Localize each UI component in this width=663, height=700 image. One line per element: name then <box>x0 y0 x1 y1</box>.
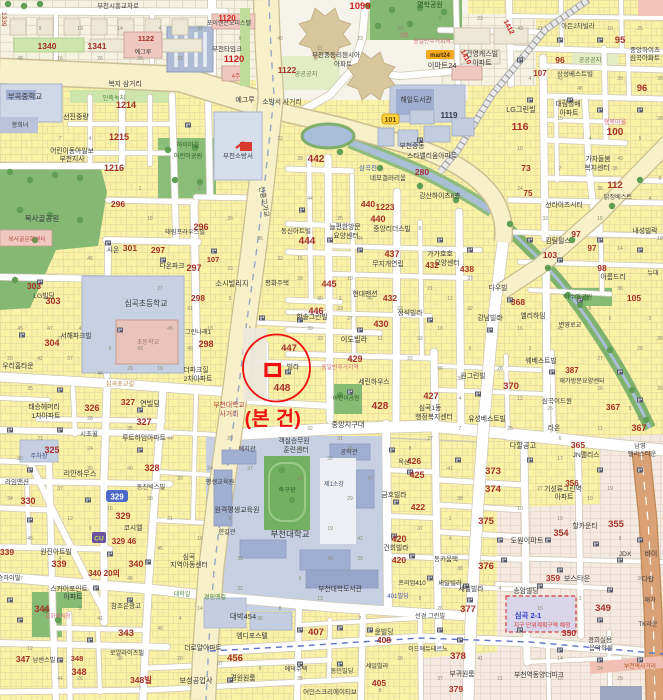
svg-text:루트하임아파트: 루트하임아파트 <box>122 433 166 442</box>
svg-text:1215: 1215 <box>109 132 129 142</box>
svg-text:44: 44 <box>167 436 173 442</box>
svg-text:아름드리: 아름드리 <box>600 272 625 281</box>
svg-text:29: 29 <box>637 416 643 422</box>
svg-text:329: 329 <box>110 493 124 502</box>
svg-text:32: 32 <box>277 256 283 262</box>
svg-text:73: 73 <box>521 163 531 173</box>
svg-text:8: 8 <box>409 446 412 452</box>
svg-text:봉희녀: 봉희녀 <box>12 121 29 129</box>
svg-text:훈련센터: 훈련센터 <box>283 445 308 454</box>
svg-text:27: 27 <box>347 316 353 322</box>
svg-text:1119: 1119 <box>441 111 458 120</box>
svg-text:세린하우스: 세린하우스 <box>358 377 389 386</box>
svg-text:437: 437 <box>384 249 399 259</box>
svg-text:라임맨션: 라임맨션 <box>5 477 29 486</box>
svg-text:445: 445 <box>321 279 336 289</box>
svg-text:349: 349 <box>595 603 611 614</box>
svg-text:301: 301 <box>123 243 137 253</box>
svg-text:43: 43 <box>137 346 143 352</box>
svg-text:112: 112 <box>607 180 622 191</box>
svg-text:39: 39 <box>297 156 303 162</box>
svg-text:37: 37 <box>17 576 23 582</box>
svg-text:4: 4 <box>179 616 182 622</box>
svg-text:복지센터: 복지센터 <box>584 163 609 172</box>
svg-text:24: 24 <box>207 466 213 472</box>
svg-text:초등학교: 초등학교 <box>137 338 160 346</box>
svg-text:1340: 1340 <box>38 41 57 51</box>
svg-text:객실승무원: 객실승무원 <box>278 436 309 445</box>
svg-text:33: 33 <box>317 336 323 342</box>
svg-text:298: 298 <box>191 293 205 303</box>
svg-text:35: 35 <box>612 166 618 172</box>
svg-text:10: 10 <box>587 496 593 502</box>
svg-text:더로얄아파트: 더로얄아파트 <box>184 643 222 652</box>
svg-text:15: 15 <box>557 116 563 122</box>
svg-text:킴팀필스: 킴팀필스 <box>545 237 570 245</box>
svg-text:내성빌락: 내성빌락 <box>632 226 658 235</box>
svg-text:4: 4 <box>79 326 82 332</box>
svg-text:14: 14 <box>117 26 123 32</box>
svg-text:3: 3 <box>649 316 652 322</box>
svg-text:6: 6 <box>609 316 612 322</box>
svg-text:15: 15 <box>537 606 543 612</box>
svg-text:스카이포인트: 스카이포인트 <box>50 584 88 593</box>
svg-text:동민빌딩: 동민빌딩 <box>331 667 354 675</box>
svg-text:명학공원: 명학공원 <box>417 0 443 9</box>
svg-text:예지관: 예지관 <box>238 445 255 453</box>
svg-text:100: 100 <box>607 127 624 138</box>
svg-text:37: 37 <box>197 186 203 192</box>
svg-text:부천지사: 부천지사 <box>59 154 85 163</box>
svg-text:37: 37 <box>467 276 473 282</box>
svg-text:라온: 라온 <box>548 423 561 432</box>
svg-text:코시엘: 코시엘 <box>124 524 143 532</box>
svg-text:동신아트빌: 동신아트빌 <box>281 226 311 235</box>
svg-text:남영: 남영 <box>634 442 645 450</box>
svg-text:엠디포스텔: 엠디포스텔 <box>236 631 267 640</box>
svg-text:28: 28 <box>637 346 643 352</box>
svg-text:12: 12 <box>517 396 523 402</box>
svg-text:297: 297 <box>186 263 201 273</box>
svg-text:10: 10 <box>607 26 613 32</box>
svg-text:32: 32 <box>307 426 313 432</box>
svg-text:44: 44 <box>57 676 63 682</box>
svg-text:39: 39 <box>307 326 313 332</box>
svg-text:LG그린빌: LG그린빌 <box>506 105 535 114</box>
svg-text:6: 6 <box>419 226 422 232</box>
svg-text:하이마을: 하이마을 <box>177 141 200 149</box>
svg-text:어린이공원: 어린이공원 <box>174 152 203 160</box>
svg-text:36: 36 <box>257 236 263 242</box>
svg-text:348: 348 <box>71 654 84 663</box>
svg-text:다온파크: 다온파크 <box>159 261 184 270</box>
svg-text:심곡이드원: 심곡이드원 <box>542 396 572 405</box>
svg-text:14: 14 <box>197 606 203 612</box>
svg-text:30: 30 <box>617 76 623 82</box>
svg-text:아파트: 아파트 <box>64 592 83 601</box>
svg-text:서해파크빌: 서해파크빌 <box>60 331 91 340</box>
svg-text:325: 325 <box>44 445 59 455</box>
svg-text:1120: 1120 <box>218 14 236 23</box>
svg-text:35: 35 <box>127 426 133 432</box>
svg-text:1214: 1214 <box>116 100 136 110</box>
svg-text:21: 21 <box>37 436 43 442</box>
svg-text:14: 14 <box>557 656 563 662</box>
svg-text:음악학원: 음악학원 <box>589 643 613 652</box>
svg-text:40: 40 <box>127 466 133 472</box>
svg-text:33: 33 <box>237 556 243 562</box>
svg-text:에덕주택: 에덕주택 <box>285 665 308 673</box>
svg-text:75: 75 <box>524 189 533 198</box>
svg-text:아파트: 아파트 <box>555 492 574 501</box>
svg-text:15: 15 <box>597 216 603 222</box>
svg-text:송암빌딩: 송암빌딩 <box>513 586 538 595</box>
svg-text:43: 43 <box>617 156 623 162</box>
svg-text:16: 16 <box>107 506 113 512</box>
svg-text:25: 25 <box>637 26 643 32</box>
svg-text:432: 432 <box>383 293 397 303</box>
svg-text:344: 344 <box>34 604 49 614</box>
svg-text:20: 20 <box>227 436 233 442</box>
svg-text:26: 26 <box>97 56 103 62</box>
svg-text:45: 45 <box>167 326 173 332</box>
svg-text:대박454: 대박454 <box>230 611 256 621</box>
svg-text:365: 365 <box>571 440 585 450</box>
svg-text:사거리: 사거리 <box>220 409 239 418</box>
svg-text:참조은광고: 참조은광고 <box>111 602 141 610</box>
svg-text:41: 41 <box>477 656 483 662</box>
svg-text:1차아파트: 1차아파트 <box>32 411 61 420</box>
svg-text:가자들봄: 가자들봄 <box>585 154 610 163</box>
svg-text:아든2차빌라: 아든2차빌라 <box>561 21 595 30</box>
svg-text:부천대학교: 부천대학교 <box>270 529 309 539</box>
svg-text:43: 43 <box>517 26 523 32</box>
svg-text:21: 21 <box>537 26 543 32</box>
svg-text:107: 107 <box>533 69 547 78</box>
svg-text:444: 444 <box>299 236 316 247</box>
svg-text:16: 16 <box>57 56 63 62</box>
svg-text:웨베스트빌: 웨베스트빌 <box>525 356 556 365</box>
svg-text:6: 6 <box>559 436 562 442</box>
svg-text:JDX: JDX <box>619 551 632 558</box>
svg-text:태승헤머리: 태승헤머리 <box>28 402 59 411</box>
svg-text:27: 27 <box>157 286 163 292</box>
svg-text:36: 36 <box>657 336 663 342</box>
svg-text:30: 30 <box>177 476 183 482</box>
svg-text:103: 103 <box>543 250 557 260</box>
svg-text:이마트24: 이마트24 <box>427 60 456 70</box>
svg-text:408: 408 <box>377 635 391 645</box>
svg-text:26: 26 <box>437 606 443 612</box>
svg-text:늘편한방문: 늘편한방문 <box>329 222 360 231</box>
svg-text:42: 42 <box>357 536 363 542</box>
svg-text:27: 27 <box>597 356 603 362</box>
svg-text:101: 101 <box>385 117 397 124</box>
svg-text:5: 5 <box>589 306 592 312</box>
svg-text:아파트: 아파트 <box>334 59 352 68</box>
svg-text:375: 375 <box>478 516 495 527</box>
svg-text:할카운티: 할카운티 <box>572 521 597 530</box>
svg-text:유성베스트빌: 유성베스트빌 <box>468 414 506 423</box>
svg-text:경원원룸: 경원원룸 <box>230 673 255 682</box>
svg-text:25: 25 <box>337 216 343 222</box>
svg-text:33: 33 <box>542 216 548 222</box>
svg-text:아파트: 아파트 <box>472 58 492 67</box>
svg-text:빌라: 빌라 <box>287 362 300 371</box>
svg-text:(본 건): (본 건) <box>245 408 302 430</box>
svg-text:20: 20 <box>87 466 93 472</box>
svg-text:소시빌리지: 소시빌리지 <box>215 279 248 288</box>
svg-text:4: 4 <box>89 136 92 142</box>
svg-text:예그루: 예그루 <box>235 95 255 104</box>
svg-text:부천대학도서관: 부천대학도서관 <box>318 584 362 593</box>
svg-text:15: 15 <box>297 256 303 262</box>
svg-text:330: 330 <box>20 496 35 506</box>
svg-text:대림청배: 대림청배 <box>555 99 580 108</box>
svg-text:27: 27 <box>57 336 63 342</box>
svg-text:36: 36 <box>117 656 123 662</box>
svg-text:한솔그린빌: 한솔그린빌 <box>296 312 327 321</box>
svg-text:금호빌라: 금호빌라 <box>381 490 407 499</box>
svg-text:42: 42 <box>557 76 563 82</box>
svg-text:바이: 바이 <box>645 549 658 558</box>
svg-text:456: 456 <box>227 653 243 664</box>
svg-text:4: 4 <box>589 136 592 142</box>
svg-text:도원이파트: 도원이파트 <box>510 536 543 545</box>
svg-text:남센스빌: 남센스빌 <box>33 656 56 664</box>
svg-text:공공공지: 공공공지 <box>295 70 318 78</box>
svg-text:38: 38 <box>397 656 403 662</box>
svg-text:mart24: mart24 <box>430 53 450 59</box>
svg-text:296: 296 <box>111 199 125 209</box>
svg-text:9: 9 <box>39 26 42 32</box>
svg-text:18: 18 <box>207 326 213 332</box>
svg-text:297: 297 <box>151 245 165 255</box>
svg-text:26: 26 <box>77 676 83 682</box>
svg-text:44: 44 <box>357 236 363 242</box>
svg-text:23: 23 <box>337 306 343 312</box>
svg-text:선진중량: 선진중량 <box>63 112 89 121</box>
svg-text:엘리하임: 엘리하임 <box>520 311 545 320</box>
svg-text:보스타운: 보스타운 <box>564 574 591 583</box>
svg-text:로얄라이츠빌: 로얄라이츠빌 <box>110 649 144 657</box>
svg-text:405: 405 <box>372 678 386 688</box>
svg-text:355: 355 <box>608 519 625 530</box>
svg-text:37: 37 <box>427 436 433 442</box>
svg-text:4: 4 <box>59 556 62 562</box>
svg-text:45: 45 <box>17 326 23 332</box>
svg-text:복지 삼거리: 복지 삼거리 <box>108 79 141 88</box>
svg-text:3: 3 <box>529 346 532 352</box>
svg-text:38: 38 <box>457 376 463 382</box>
svg-text:보성공업사: 보성공업사 <box>179 676 212 685</box>
svg-text:368: 368 <box>511 297 525 307</box>
svg-text:심곡초교길: 심곡초교길 <box>106 380 135 388</box>
svg-text:1341: 1341 <box>88 41 107 51</box>
svg-text:35: 35 <box>27 386 33 392</box>
svg-text:374: 374 <box>485 484 502 495</box>
svg-text:38: 38 <box>457 566 463 572</box>
svg-text:5: 5 <box>229 296 232 302</box>
svg-text:420: 420 <box>391 534 406 544</box>
svg-text:327: 327 <box>136 417 151 427</box>
svg-text:28: 28 <box>87 416 93 422</box>
svg-text:30: 30 <box>17 456 23 462</box>
svg-text:세일빌라: 세일빌라 <box>366 662 389 670</box>
svg-text:328: 328 <box>144 463 159 473</box>
svg-text:선라이즈시티: 선라이즈시티 <box>545 200 583 209</box>
svg-text:347: 347 <box>16 654 30 664</box>
svg-text:시온: 시온 <box>107 246 120 254</box>
svg-text:430: 430 <box>373 319 388 329</box>
svg-text:공공공지: 공공공지 <box>579 56 602 64</box>
svg-text:298: 298 <box>198 339 213 349</box>
svg-text:20: 20 <box>7 356 13 362</box>
svg-text:19: 19 <box>607 486 613 492</box>
svg-text:97: 97 <box>588 244 597 253</box>
svg-text:중앙하이츠: 중앙하이츠 <box>630 45 660 54</box>
svg-text:46: 46 <box>157 626 163 632</box>
svg-text:13: 13 <box>557 676 563 682</box>
svg-text:12: 12 <box>27 646 33 652</box>
svg-text:1: 1 <box>139 186 142 192</box>
svg-text:377: 377 <box>460 604 476 615</box>
svg-text:26: 26 <box>227 216 233 222</box>
svg-text:종일반주거지역: 종일반주거지역 <box>413 37 450 45</box>
svg-text:45: 45 <box>27 536 33 542</box>
svg-text:343: 343 <box>118 628 134 639</box>
svg-text:354: 354 <box>553 528 568 538</box>
svg-text:9: 9 <box>619 536 622 542</box>
svg-text:10: 10 <box>517 506 523 512</box>
svg-text:연빌딩: 연빌딩 <box>140 399 160 408</box>
svg-text:7: 7 <box>559 166 562 172</box>
svg-text:평화주택: 평화주택 <box>265 278 289 287</box>
svg-text:1339: 1339 <box>0 12 7 27</box>
svg-text:9: 9 <box>89 526 92 532</box>
svg-text:442: 442 <box>308 154 325 165</box>
svg-text:1122: 1122 <box>138 34 154 43</box>
svg-text:11: 11 <box>497 676 502 682</box>
svg-text:5: 5 <box>629 406 632 412</box>
svg-text:29: 29 <box>347 496 353 502</box>
svg-text:407: 407 <box>308 627 324 638</box>
svg-text:329: 329 <box>115 511 130 521</box>
svg-text:327: 327 <box>121 397 135 407</box>
svg-text:부천타임크: 부천타임크 <box>212 44 242 53</box>
svg-text:이드에듀테르노: 이드에듀테르노 <box>408 645 448 653</box>
svg-text:32: 32 <box>417 336 423 342</box>
svg-text:26: 26 <box>597 386 603 392</box>
svg-text:2림: 2림 <box>400 31 409 39</box>
svg-text:24: 24 <box>517 186 523 192</box>
svg-text:429: 429 <box>347 354 362 364</box>
svg-text:37: 37 <box>67 356 73 362</box>
svg-text:TK라운: TK라운 <box>638 620 658 628</box>
svg-text:107: 107 <box>207 255 220 264</box>
svg-text:280: 280 <box>415 167 429 177</box>
svg-text:다람: 다람 <box>642 574 654 583</box>
svg-text:팰리스타운: 팰리스타운 <box>628 450 657 458</box>
svg-text:97: 97 <box>571 229 581 239</box>
svg-text:현대맨션: 현대맨션 <box>352 289 377 298</box>
svg-text:36: 36 <box>257 616 263 622</box>
svg-text:340: 340 <box>128 559 143 569</box>
svg-text:41: 41 <box>297 446 303 452</box>
svg-text:36: 36 <box>637 576 643 582</box>
svg-text:심곡1동: 심곡1동 <box>419 403 442 412</box>
svg-text:중앙리더스빌: 중앙리더스빌 <box>373 224 411 233</box>
svg-text:행복마을: 행복마을 <box>604 118 627 126</box>
svg-text:38: 38 <box>147 496 153 502</box>
svg-text:프리엄410: 프리엄410 <box>398 579 426 587</box>
svg-text:원격평생교육원: 원격평생교육원 <box>214 505 259 514</box>
svg-text:부천역사거리: 부천역사거리 <box>624 662 656 670</box>
svg-text:세일빌라: 세일빌라 <box>438 578 462 587</box>
svg-text:JN팰리스: JN팰리스 <box>572 450 599 459</box>
svg-text:5: 5 <box>109 346 112 352</box>
svg-text:22: 22 <box>327 456 333 462</box>
svg-text:부귀원룸: 부귀원룸 <box>449 669 474 678</box>
svg-text:부천시흥교차로: 부천시흥교차로 <box>97 1 139 10</box>
svg-text:다할공고: 다할공고 <box>510 441 537 450</box>
svg-text:17: 17 <box>557 456 563 462</box>
svg-text:5: 5 <box>299 576 302 582</box>
svg-text:요양센터: 요양센터 <box>333 231 358 240</box>
svg-text:태림프라우스빌: 태림프라우스빌 <box>165 228 205 236</box>
svg-text:지역아동센터: 지역아동센터 <box>170 560 208 569</box>
svg-text:373: 373 <box>485 466 501 477</box>
svg-text:11: 11 <box>597 426 602 432</box>
svg-text:44: 44 <box>307 196 313 202</box>
svg-text:37: 37 <box>217 661 223 667</box>
svg-text:32: 32 <box>197 26 203 32</box>
svg-text:종일반주거지역: 종일반주거지역 <box>321 363 358 371</box>
svg-text:해일도서관: 해일도서관 <box>400 95 431 104</box>
svg-text:32: 32 <box>467 306 473 312</box>
svg-text:9: 9 <box>659 176 662 182</box>
svg-text:427: 427 <box>423 391 438 401</box>
svg-text:18: 18 <box>657 236 663 242</box>
svg-text:96: 96 <box>555 55 565 65</box>
svg-text:45: 45 <box>367 296 373 302</box>
svg-text:38: 38 <box>597 186 603 192</box>
svg-text:37: 37 <box>57 486 63 492</box>
svg-text:건영캐스빌: 건영캐스빌 <box>466 49 498 58</box>
svg-text:24: 24 <box>597 666 603 672</box>
svg-text:95: 95 <box>615 35 626 46</box>
svg-text:가가호호: 가가호호 <box>427 249 453 258</box>
svg-text:우리홈타운: 우리홈타운 <box>2 361 33 370</box>
svg-text:30: 30 <box>317 296 323 302</box>
svg-text:건희빌라: 건희빌라 <box>383 543 409 552</box>
svg-text:356: 356 <box>565 479 579 488</box>
svg-text:8: 8 <box>279 606 282 612</box>
svg-text:7: 7 <box>359 616 362 622</box>
svg-text:심곡: 심곡 <box>183 552 196 561</box>
svg-text:평생교육원: 평생교육원 <box>206 478 235 486</box>
svg-text:부천대학교: 부천대학교 <box>213 400 244 409</box>
svg-text:440: 440 <box>361 199 375 209</box>
svg-text:지구 단위계획구역 예정: 지구 단위계획구역 예정 <box>514 621 571 629</box>
svg-text:23: 23 <box>477 16 483 22</box>
svg-text:22: 22 <box>277 136 283 142</box>
svg-text:7: 7 <box>59 136 62 142</box>
svg-text:23: 23 <box>227 266 233 272</box>
svg-text:387: 387 <box>565 366 579 375</box>
svg-text:심곡아파트: 심곡아파트 <box>630 53 660 62</box>
svg-text:LG빌딩: LG빌딩 <box>33 291 55 300</box>
